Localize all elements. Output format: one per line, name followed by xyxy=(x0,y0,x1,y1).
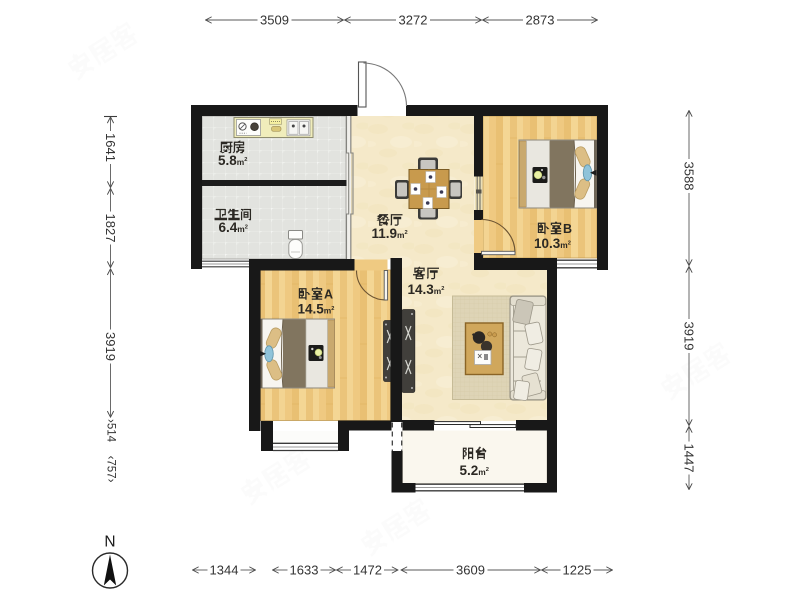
svg-text:B: B xyxy=(563,222,572,236)
svg-text:A: A xyxy=(324,288,333,302)
svg-text:3509: 3509 xyxy=(260,13,289,28)
svg-text:1344: 1344 xyxy=(210,563,239,578)
svg-text:‹757›: ‹757› xyxy=(105,456,117,483)
svg-text:1641: 1641 xyxy=(103,133,118,162)
svg-text:3919: 3919 xyxy=(682,322,697,351)
svg-text:1447: 1447 xyxy=(682,444,697,473)
svg-text:3272: 3272 xyxy=(399,13,428,28)
svg-text:1472: 1472 xyxy=(353,563,382,578)
svg-text:›514: ›514 xyxy=(105,419,117,443)
svg-text:3588: 3588 xyxy=(682,162,697,191)
svg-text:1633: 1633 xyxy=(290,563,319,578)
svg-text:1827: 1827 xyxy=(103,214,118,243)
svg-text:3919: 3919 xyxy=(103,332,118,361)
svg-text:2873: 2873 xyxy=(526,13,555,28)
svg-text:3609: 3609 xyxy=(456,563,485,578)
svg-text:1225: 1225 xyxy=(563,563,592,578)
svg-text:N: N xyxy=(104,534,115,551)
